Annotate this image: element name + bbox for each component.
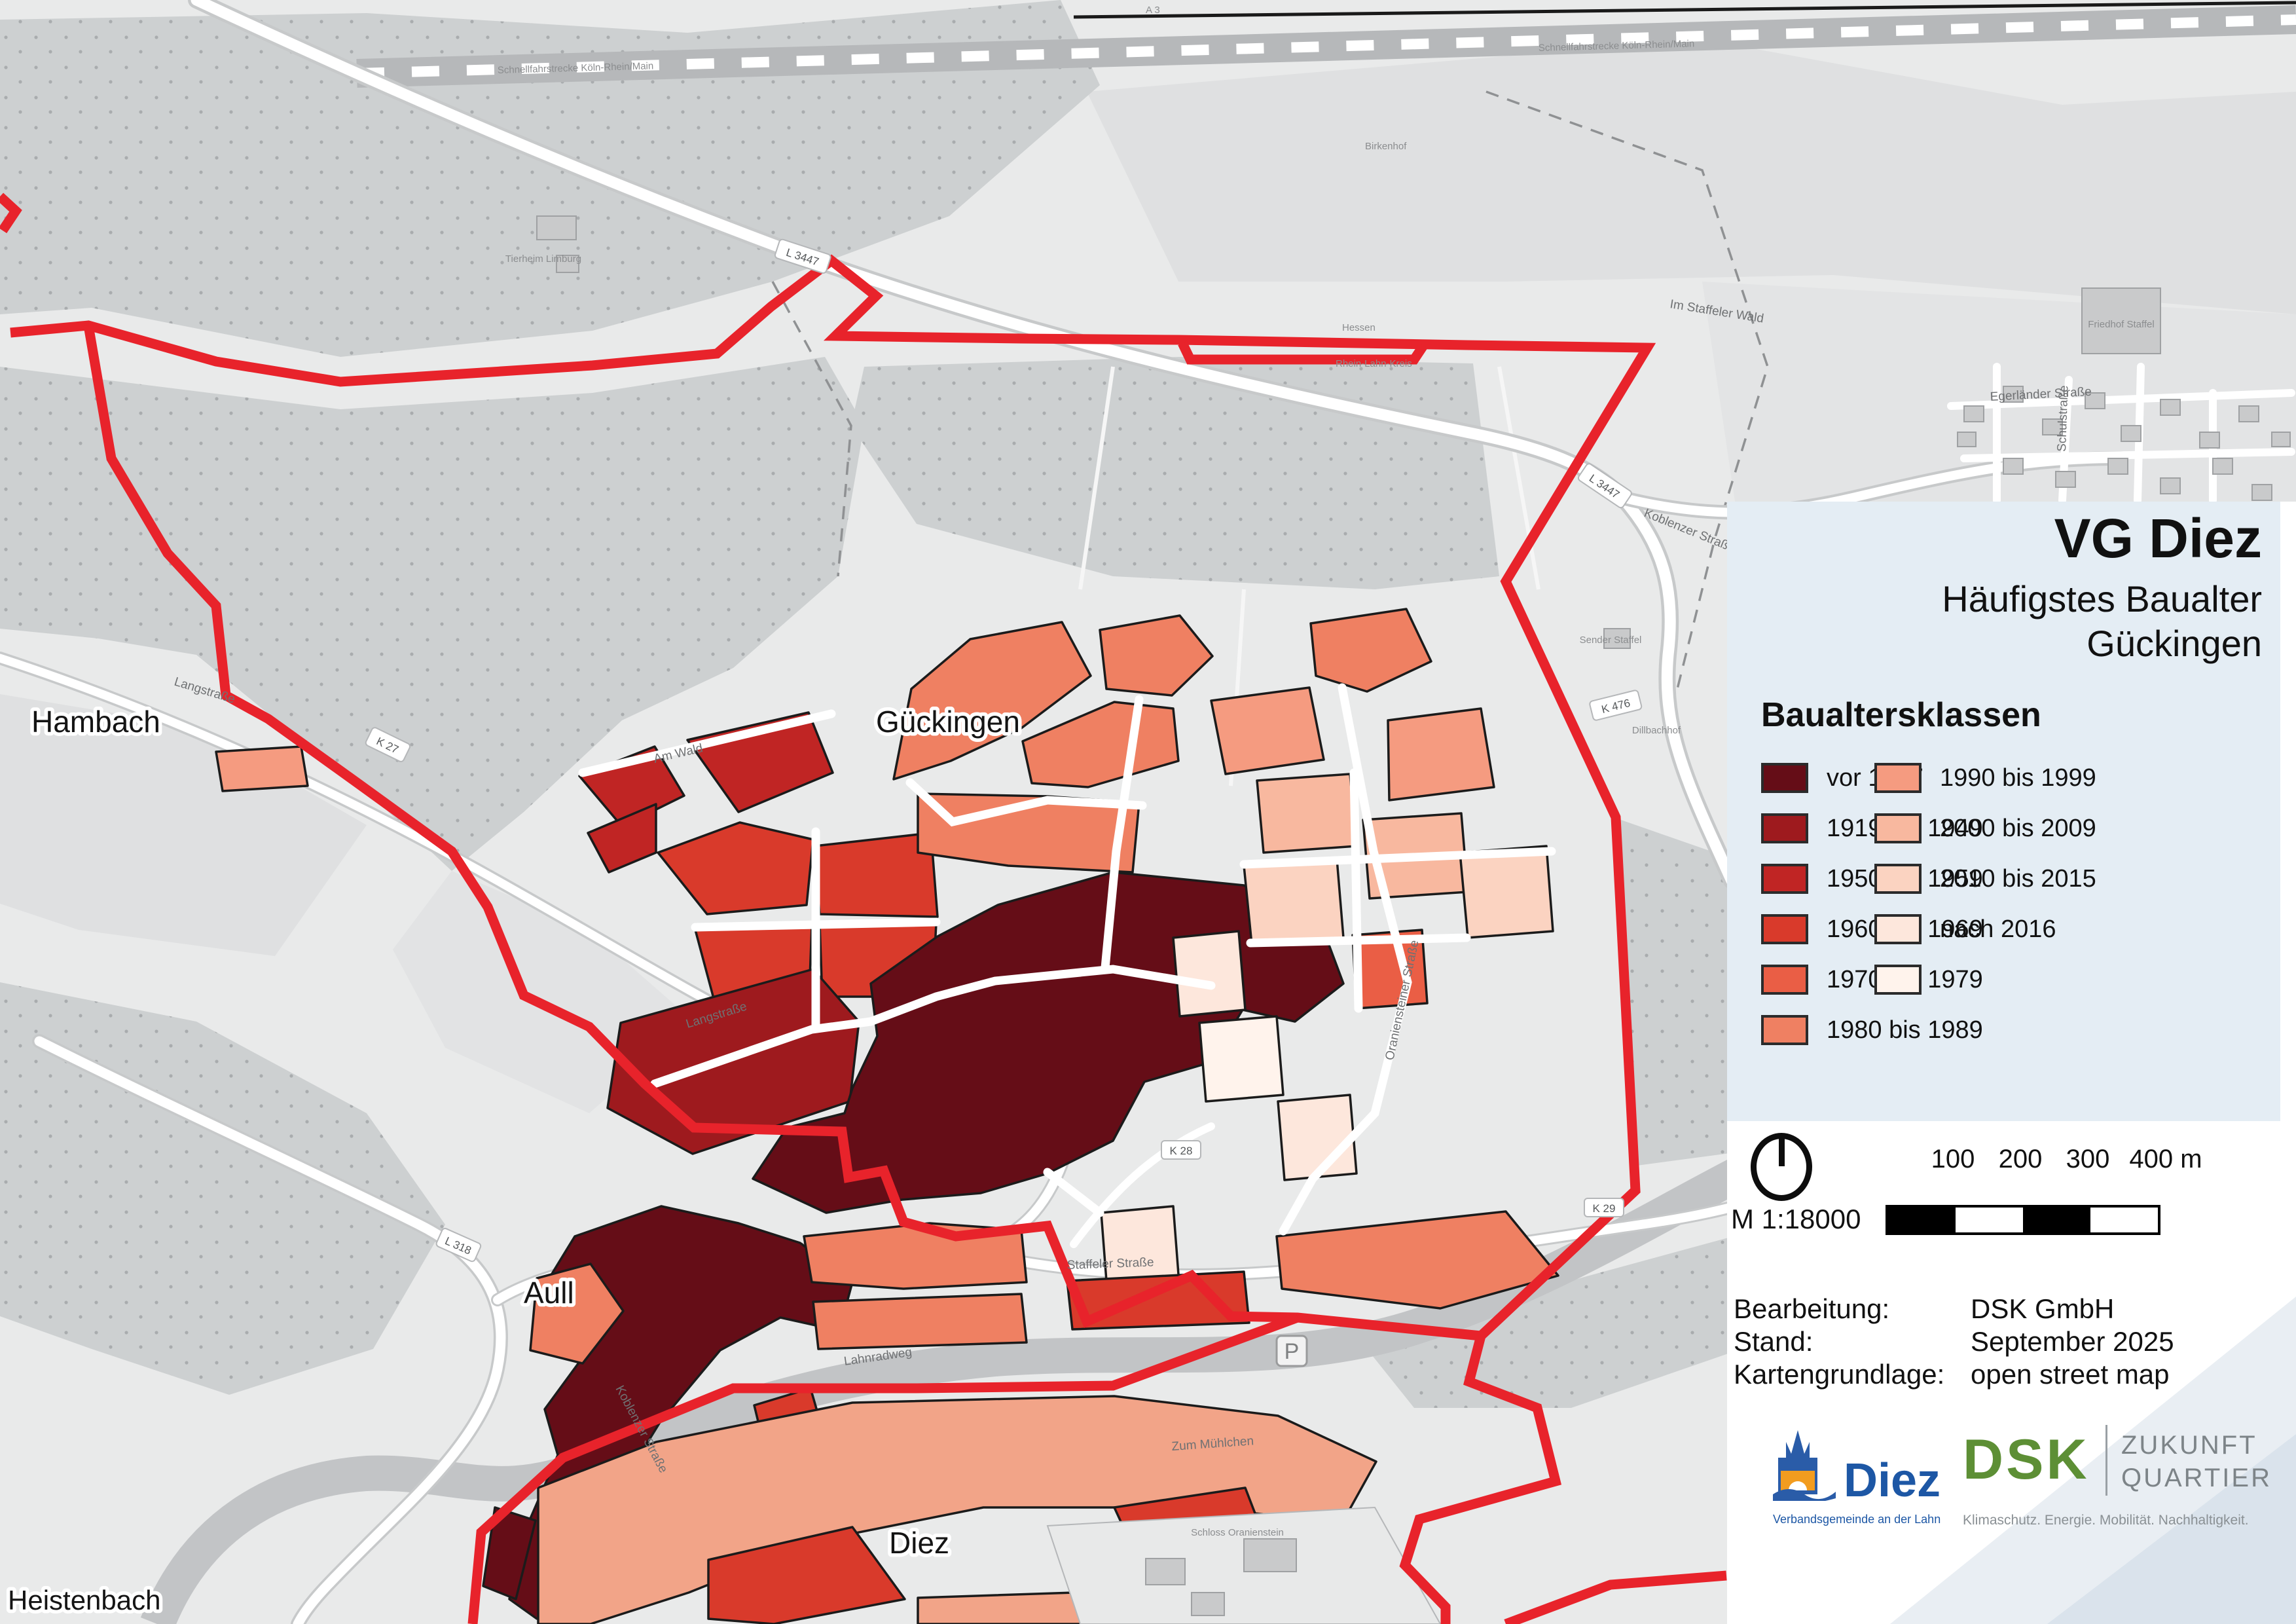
map-subtitle: Häufigstes Baualter bbox=[1942, 578, 2262, 620]
legend-label: nach 2016 bbox=[1940, 915, 2056, 944]
scalebar bbox=[1886, 1205, 2160, 1235]
legend-label: 2000 bis 2009 bbox=[1940, 815, 2096, 843]
place-label-aull: Aull bbox=[524, 1276, 574, 1310]
svg-text:K 28: K 28 bbox=[1170, 1145, 1193, 1157]
logo-row: Diez Verbandsgemeinde an der Lahn DSK ZU… bbox=[1727, 1409, 2296, 1566]
map-title: VG Diez bbox=[2054, 507, 2262, 570]
svg-text:Friedhof Staffel: Friedhof Staffel bbox=[2088, 319, 2154, 330]
attr-value: DSK GmbH bbox=[1971, 1293, 2114, 1324]
legend-swatch bbox=[1761, 914, 1808, 944]
svg-text:Birkenhof: Birkenhof bbox=[1365, 141, 1407, 152]
attribution: Bearbeitung:DSK GmbH Stand:September 202… bbox=[1734, 1293, 2174, 1391]
legend-label: 2010 bis 2015 bbox=[1940, 865, 2096, 893]
svg-text:Tierheim Limburg: Tierheim Limburg bbox=[505, 253, 581, 265]
legend-label: 1990 bis 1999 bbox=[1940, 764, 2096, 792]
place-label-hambach: Hambach bbox=[31, 705, 160, 739]
dsk-logo-name: DSK bbox=[1963, 1428, 2090, 1492]
svg-text:P: P bbox=[1285, 1339, 1300, 1364]
map-sheet: P L 3447 L 3447 K 476 K 27 L 318 K 28 K … bbox=[0, 0, 2296, 1624]
legend-swatch bbox=[1761, 1015, 1808, 1045]
dsk-logo-divider bbox=[2105, 1425, 2107, 1496]
svg-text:Sender Staffel: Sender Staffel bbox=[1580, 635, 1642, 646]
attr-key: Bearbeitung: bbox=[1734, 1293, 1971, 1325]
svg-text:Rhein-Lahn-Kreis: Rhein-Lahn-Kreis bbox=[1336, 358, 1412, 369]
legend-title: Baualtersklassen bbox=[1761, 695, 2041, 735]
diez-logo: Diez Verbandsgemeinde an der Lahn bbox=[1773, 1429, 1943, 1504]
dsk-logo-tagline: Klimaschutz. Energie. Mobilität. Nachhal… bbox=[1963, 1513, 2249, 1528]
place-label-gueckingen: Gückingen bbox=[876, 705, 1020, 739]
legend-label: 1980 bis 1989 bbox=[1827, 1016, 1983, 1044]
svg-text:Schloss Oranienstein: Schloss Oranienstein bbox=[1191, 1527, 1284, 1538]
scale-ratio: M 1:18000 bbox=[1731, 1204, 1861, 1235]
title-legend-panel: VG Diez Häufigstes Baualter Gückingen Ba… bbox=[1727, 502, 2280, 1121]
svg-text:Dillbachhof: Dillbachhof bbox=[1632, 725, 1681, 736]
place-label-diez: Diez bbox=[889, 1526, 949, 1560]
place-label-heistenbach: Heistenbach bbox=[8, 1585, 160, 1615]
legend-swatch bbox=[1874, 914, 1922, 944]
diez-castle-icon bbox=[1773, 1429, 1838, 1501]
dsk-logo-claim: ZUKUNFT QUARTIER bbox=[2121, 1429, 2272, 1494]
legend-swatch bbox=[1761, 965, 1808, 995]
attr-value: September 2025 bbox=[1971, 1326, 2174, 1357]
svg-text:Hessen: Hessen bbox=[1342, 322, 1376, 333]
attr-key: Kartengrundlage: bbox=[1734, 1358, 1971, 1391]
north-arrow-icon bbox=[1751, 1133, 1812, 1201]
map-info-box: 100 200 300 400 m M 1:18000 Bearbeitung:… bbox=[1727, 1121, 2296, 1624]
map-area-name: Gückingen bbox=[2086, 622, 2262, 665]
panel-margin bbox=[2280, 502, 2296, 1121]
legend-swatch bbox=[1874, 965, 1922, 995]
attr-key: Stand: bbox=[1734, 1325, 1971, 1358]
legend-swatch bbox=[1874, 864, 1922, 894]
svg-text:K 29: K 29 bbox=[1593, 1202, 1616, 1215]
diez-logo-tagline: Verbandsgemeinde an der Lahn bbox=[1773, 1513, 1941, 1526]
legend-swatch bbox=[1761, 864, 1808, 894]
legend-swatch bbox=[1874, 763, 1922, 793]
legend-swatch bbox=[1761, 763, 1808, 793]
svg-text:A 3: A 3 bbox=[1146, 5, 1160, 16]
legend-swatch bbox=[1761, 813, 1808, 843]
parking-icon: P bbox=[1277, 1336, 1307, 1366]
legend-swatch bbox=[1874, 813, 1922, 843]
diez-logo-name: Diez bbox=[1844, 1454, 1941, 1507]
attr-value: open street map bbox=[1971, 1359, 2170, 1390]
